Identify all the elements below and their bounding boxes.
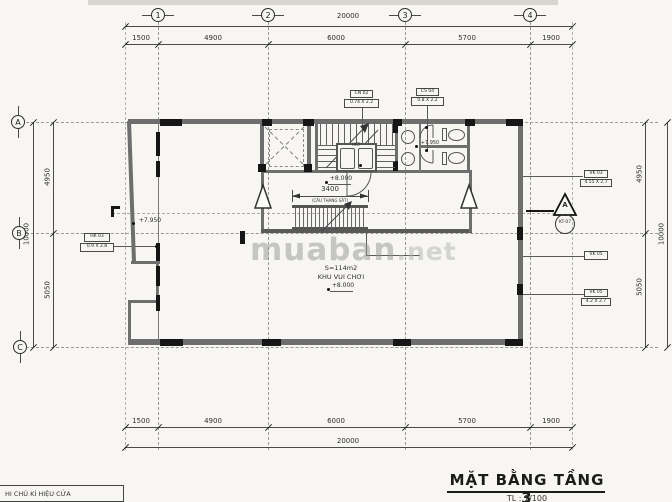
- dim-line-left-total: [33, 122, 34, 347]
- extension-line-right: [572, 22, 573, 450]
- ladder-rung: [363, 208, 364, 228]
- ladder-rung: [347, 208, 348, 228]
- dim-right-total: 10000: [659, 223, 666, 245]
- parapet-left: [261, 172, 264, 232]
- dim-line-bottom-segments: [125, 427, 572, 428]
- column: [258, 164, 266, 172]
- column: [465, 119, 475, 126]
- stair-tread: [318, 149, 336, 150]
- dim-top-seg-2: 4900: [193, 35, 233, 42]
- grid-bubble-C-label: C: [17, 343, 23, 352]
- toilet-icon: [448, 129, 465, 141]
- level-stair: +8.000: [329, 176, 353, 182]
- grid-bubble-2-label: 2: [265, 11, 270, 20]
- dim-top-seg-4: 5700: [447, 35, 487, 42]
- ladder-rung: [351, 208, 352, 228]
- grid-bubble-1: 1: [151, 8, 165, 22]
- floor-plan-canvas: 1 2 3 4 A B C 20000 1500 4900 6000 5700 …: [0, 0, 672, 502]
- wall-block: [393, 124, 398, 133]
- wc-counter-divider: [419, 124, 421, 172]
- grid-bubble-3-label: 3: [402, 11, 407, 20]
- stair-tread: [368, 124, 369, 145]
- grid-bubble-4: 4: [523, 8, 537, 22]
- column: [240, 231, 245, 244]
- column: [160, 119, 182, 126]
- column: [517, 227, 523, 240]
- section-cut-line: [526, 210, 554, 212]
- door-tag-size: 0.9 X 2.8: [80, 243, 114, 252]
- grid-line-C: [26, 347, 658, 348]
- stair-tread: [356, 124, 357, 145]
- level-room: +8.000: [331, 283, 355, 289]
- ladder-rung: [343, 208, 344, 228]
- watermark-suffix: .net: [396, 237, 456, 266]
- dim-ext: [368, 190, 369, 202]
- ladder-rung: [319, 208, 320, 228]
- stair-tread: [318, 167, 336, 168]
- note-table-header: HI CHÚ KÍ HIỆU CỬA: [0, 485, 124, 502]
- level-underline: [330, 291, 353, 292]
- leader-dot: [155, 245, 158, 248]
- ladder-rung: [359, 208, 360, 228]
- watermark: muaban.net: [250, 232, 457, 268]
- level-dot: [325, 181, 328, 184]
- title-underline: [447, 491, 605, 493]
- extension-line-left: [125, 22, 126, 450]
- stair-tread: [362, 124, 363, 145]
- column: [262, 339, 281, 346]
- door-tag-code: HK 03: [84, 233, 110, 242]
- hkt-label: HKT: [341, 144, 371, 149]
- stair-tread: [332, 124, 333, 145]
- dim-line-bottom-total: [125, 447, 572, 448]
- level-dot: [327, 288, 330, 291]
- dim-left-seg-1: 4950: [45, 168, 52, 186]
- ladder-rung: [339, 208, 340, 228]
- dim-ext: [292, 190, 293, 202]
- window-tag-size: 4.55 X 2.7: [580, 179, 612, 187]
- dim-line-right-total: [667, 122, 668, 347]
- stair-tread: [350, 124, 351, 145]
- room-name-label: KHU VUI CHƠI: [311, 274, 371, 281]
- louver-leaf: [156, 161, 160, 177]
- wall-left-lower: [128, 302, 131, 340]
- ladder-label: (CẦU THANG SẮT): [301, 199, 359, 203]
- dim-bottom-seg-4: 5700: [447, 418, 487, 425]
- stair-tread: [320, 124, 321, 145]
- leader-line: [523, 294, 584, 295]
- window-tag-code: VK 05: [584, 251, 608, 260]
- dim-bottom-seg-5: 1900: [531, 418, 571, 425]
- column: [506, 119, 523, 126]
- dim-ladder-width: 3400: [310, 186, 350, 193]
- hkt-door-leaf: [340, 148, 355, 169]
- wall-wc-right: [467, 124, 470, 172]
- louver-leaf: [156, 132, 160, 156]
- dim-left-seg-2: 5050: [45, 281, 52, 299]
- louver-leaf: [156, 295, 160, 311]
- level-underline: [328, 184, 351, 185]
- grid-bubble-1-label: 1: [155, 11, 160, 20]
- ladder-rung: [355, 208, 356, 228]
- dim-right-seg-1: 4950: [637, 165, 644, 183]
- overhead-dashed-line: [112, 213, 560, 214]
- leader-line: [523, 256, 584, 257]
- section-marker-letter: A: [558, 202, 572, 209]
- stair-tread: [377, 161, 395, 162]
- column: [505, 339, 523, 346]
- wall-stair-left: [315, 124, 318, 172]
- ladder-rung: [315, 208, 316, 228]
- ladder-rung: [327, 208, 328, 228]
- level-dot: [132, 222, 135, 225]
- stair-tread: [326, 124, 327, 145]
- ladder-rung: [323, 208, 324, 228]
- stair-tread: [344, 124, 345, 145]
- wall-block: [393, 161, 398, 171]
- stair-tread: [392, 124, 393, 145]
- column: [262, 119, 272, 126]
- door-tag-size: 0.74 X 2.2: [344, 99, 379, 108]
- louver-leaf: [156, 266, 160, 286]
- level-left: +7.950: [136, 218, 164, 224]
- dim-line-top-total: [125, 26, 572, 27]
- note-table-header-text: HI CHÚ KÍ HIỆU CỬA: [5, 490, 71, 498]
- dim-line-top-segments: [125, 44, 572, 45]
- leader-dot: [359, 164, 362, 167]
- grid-bubble-B: B: [12, 226, 26, 240]
- door-tag-size: 0.8 X 2.2: [411, 97, 444, 106]
- dim-top-total: 20000: [328, 13, 368, 20]
- section-marker-sheet: KT-07: [554, 221, 576, 226]
- column: [304, 164, 312, 172]
- toilet-tank: [442, 128, 447, 141]
- grid-line-4: [530, 22, 531, 450]
- leader-dot: [425, 126, 428, 129]
- window-tag-size: 4.2 X 2.7: [581, 298, 611, 306]
- wall-bottom: [128, 339, 523, 345]
- stair-tread: [374, 124, 375, 145]
- window-tag-code: VK 03: [584, 170, 608, 178]
- window-tag-code: VK 05: [584, 289, 608, 297]
- elevator-car-dashed: [269, 129, 304, 167]
- stair-tread: [318, 155, 336, 156]
- dim-line-ladder: [292, 196, 368, 197]
- dim-bottom-total: 20000: [328, 438, 368, 445]
- stair-tread: [380, 124, 381, 145]
- ladder-rung: [331, 208, 332, 228]
- flag-marker: [111, 206, 120, 209]
- column: [160, 339, 183, 346]
- ladder-rung: [307, 208, 308, 228]
- grid-bubble-C: C: [13, 340, 27, 354]
- leader-line: [523, 176, 583, 177]
- wall-left-step: [128, 300, 158, 303]
- stair-tread: [377, 149, 395, 150]
- sink-icon: [401, 152, 415, 166]
- ladder-rung: [311, 208, 312, 228]
- stair-tread: [318, 161, 336, 162]
- toilet-tank: [442, 152, 447, 165]
- wall-left-angled: [129, 121, 134, 262]
- grid-bubble-2: 2: [261, 8, 275, 22]
- leader-dot: [425, 149, 428, 152]
- drawing-scale: TL : 1/100: [448, 494, 606, 502]
- column: [393, 339, 411, 346]
- leader-line: [114, 246, 158, 247]
- sink-icon: [401, 130, 415, 144]
- ladder-rung: [295, 208, 296, 228]
- dim-top-seg-3: 6000: [316, 35, 356, 42]
- stair-tread: [377, 167, 395, 168]
- grid-bubble-4-label: 4: [527, 11, 532, 20]
- stair-tread: [338, 124, 339, 145]
- stair-tread: [377, 155, 395, 156]
- grid-bubble-A-label: A: [15, 118, 20, 127]
- door-tag-code: CN 02: [350, 90, 373, 98]
- column: [303, 119, 314, 126]
- ladder-rung: [299, 208, 300, 228]
- parapet-right: [469, 172, 472, 232]
- grid-bubble-A: A: [11, 115, 25, 129]
- level-wc: +7.950: [418, 141, 442, 146]
- door-tag-code: CS 04: [416, 88, 439, 96]
- dim-right-seg-2: 5050: [637, 278, 644, 296]
- toilet-icon: [448, 152, 465, 164]
- watermark-main: muaban: [250, 232, 396, 268]
- dim-bottom-seg-2: 4900: [193, 418, 233, 425]
- dim-top-seg-5: 1900: [531, 35, 571, 42]
- grid-bubble-B-label: B: [16, 229, 22, 238]
- ladder-rung: [335, 208, 336, 228]
- grid-bubble-3: 3: [398, 8, 412, 22]
- dim-bottom-seg-3: 6000: [316, 418, 356, 425]
- ladder-rung: [303, 208, 304, 228]
- stair-tread: [386, 124, 387, 145]
- scan-artifact: [88, 0, 558, 5]
